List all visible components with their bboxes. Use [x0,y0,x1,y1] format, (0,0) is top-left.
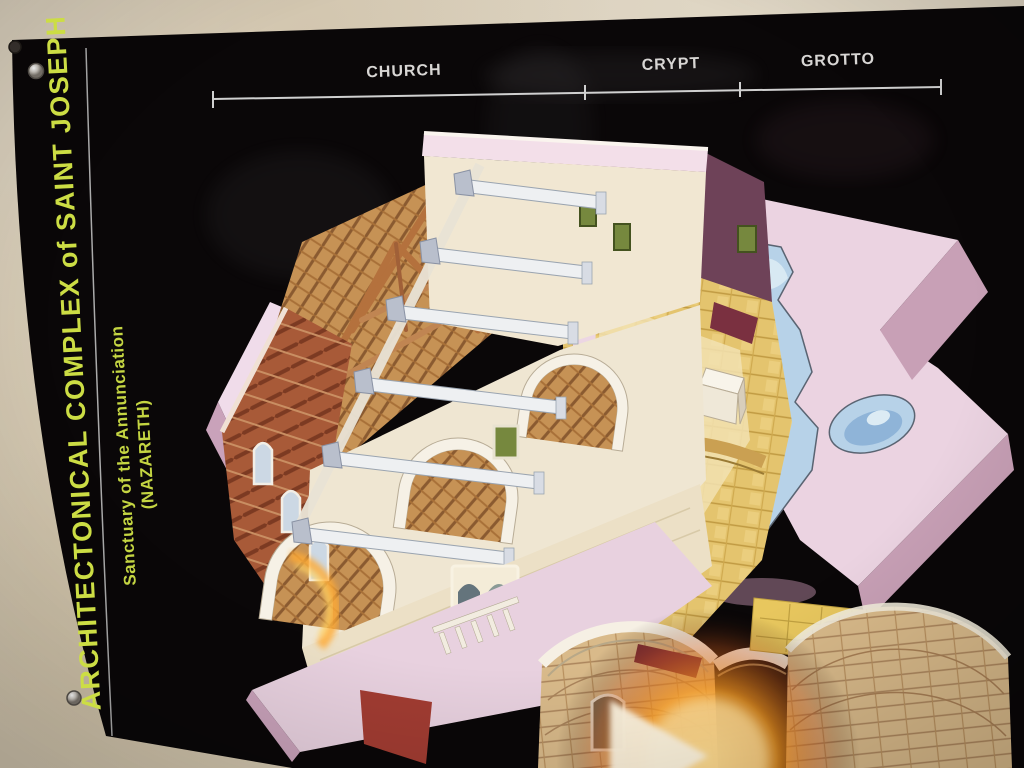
photo-of-information-poster: ARCHITECTONICAL COMPLEX of SAINT JOSEPH … [0,0,1024,768]
